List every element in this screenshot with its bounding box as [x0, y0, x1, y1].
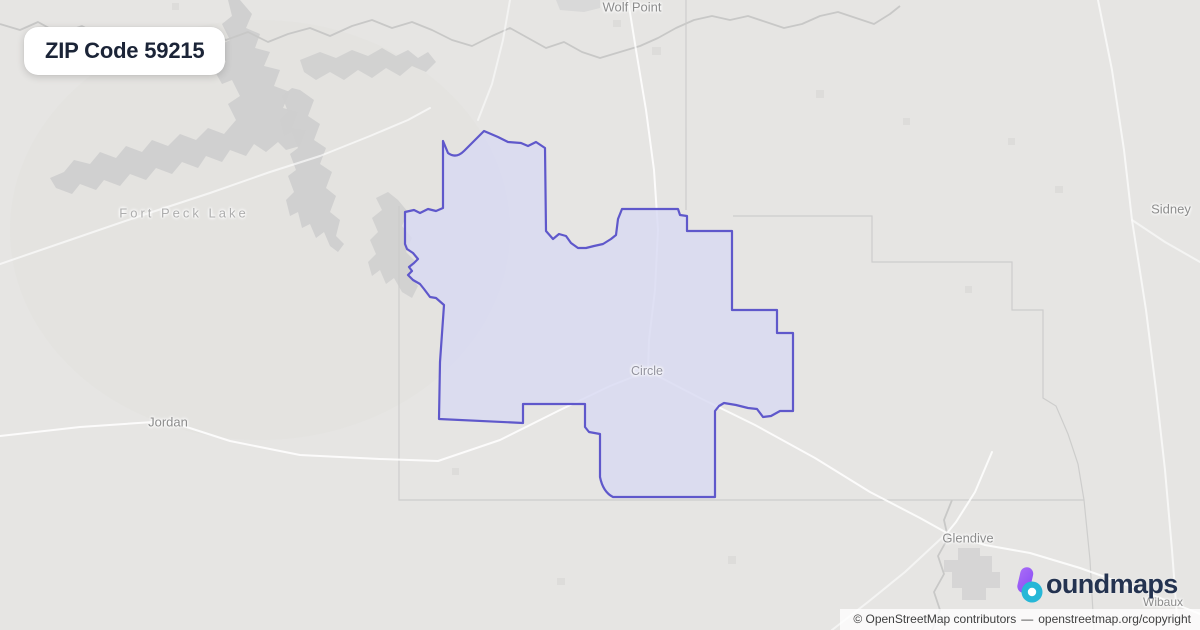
attribution-text: © OpenStreetMap contributors — [853, 612, 1016, 626]
glendive-north-road — [947, 452, 992, 533]
label-sidney: Sidney — [1151, 202, 1191, 217]
wolf-point-urban-area — [556, 0, 600, 12]
attribution-bar: © OpenStreetMap contributors—openstreetm… — [840, 609, 1200, 630]
label-glendive: Glendive — [942, 531, 993, 546]
boundmaps-logo[interactable]: oundmaps — [1016, 566, 1178, 604]
wolf-point-road — [478, 0, 510, 120]
zip-code-badge: ZIP Code 59215 — [24, 27, 225, 75]
zip-boundary-polygon[interactable] — [405, 131, 793, 497]
boundmaps-logo-icon — [1016, 566, 1046, 604]
boundmaps-wordmark: oundmaps — [1046, 566, 1178, 602]
label-jordan: Jordan — [148, 415, 188, 430]
attribution-copyright-link[interactable]: openstreetmap.org/copyright — [1038, 612, 1191, 626]
label-circle: Circle — [631, 364, 663, 378]
zip-code-badge-title: ZIP Code 59215 — [45, 38, 204, 63]
glendive-urban-area — [944, 548, 1000, 600]
sidney-branch-road — [1132, 220, 1200, 262]
label-fort-peck-lake: Fort Peck Lake — [119, 206, 248, 221]
label-wolf-point: Wolf Point — [602, 0, 661, 15]
sidney-road — [1098, 0, 1178, 630]
map-viewport[interactable]: Wolf Point Fort Peck Lake Sidney Jordan … — [0, 0, 1200, 630]
map-canvas[interactable] — [0, 0, 1200, 630]
attribution-separator: — — [1021, 612, 1033, 626]
